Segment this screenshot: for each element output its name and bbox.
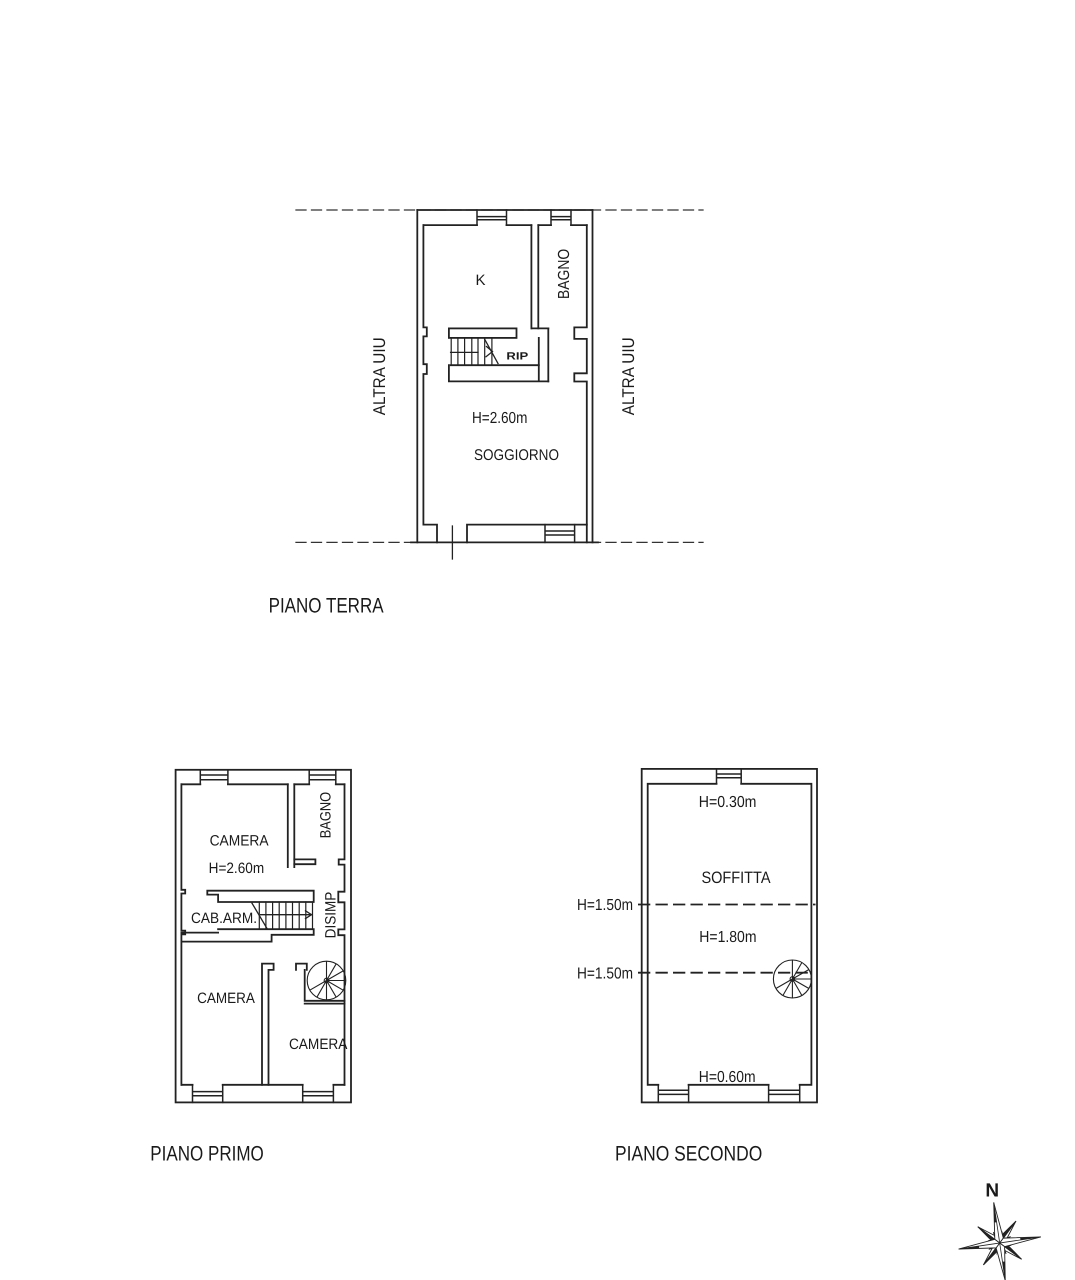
svg-text:H=1.50m: H=1.50m [577, 965, 633, 982]
svg-text:ALTRA UIU: ALTRA UIU [370, 337, 389, 415]
svg-text:CAMERA: CAMERA [210, 832, 269, 849]
svg-text:RIP: RIP [506, 350, 528, 362]
svg-text:H=2.60m: H=2.60m [472, 410, 527, 427]
svg-text:H=1.50m: H=1.50m [577, 897, 633, 914]
svg-text:H=1.80m: H=1.80m [699, 929, 756, 946]
svg-text:PIANO PRIMO: PIANO PRIMO [150, 1143, 263, 1166]
svg-text:CAB.ARM.: CAB.ARM. [191, 910, 257, 927]
svg-text:PIANO TERRA: PIANO TERRA [269, 594, 384, 617]
svg-text:H=2.60m: H=2.60m [209, 860, 265, 877]
svg-text:BAGNO: BAGNO [318, 792, 335, 838]
svg-text:SOFFITTA: SOFFITTA [701, 869, 770, 887]
svg-text:BAGNO: BAGNO [556, 249, 573, 299]
svg-text:PIANO SECONDO: PIANO SECONDO [615, 1143, 762, 1166]
svg-text:N: N [985, 1181, 999, 1202]
svg-text:CAMERA: CAMERA [289, 1036, 348, 1053]
svg-text:H=0.30m: H=0.30m [699, 794, 757, 811]
svg-text:DISIMP: DISIMP [322, 892, 339, 939]
svg-text:ALTRA UIU: ALTRA UIU [619, 337, 638, 415]
svg-text:K: K [475, 272, 485, 289]
svg-text:CAMERA: CAMERA [197, 990, 255, 1007]
svg-text:H=0.60m: H=0.60m [699, 1069, 756, 1086]
svg-text:SOGGIORNO: SOGGIORNO [474, 447, 559, 464]
